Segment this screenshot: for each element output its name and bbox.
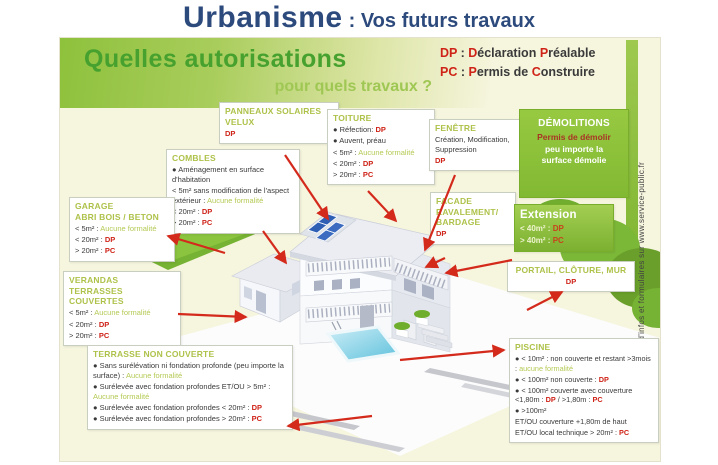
text-segment: < 20m² :	[69, 320, 99, 329]
text-segment: ● >100m²	[515, 406, 546, 415]
box-lines-garage: < 5m² : Aucune formalité< 20m² : DP> 20m…	[75, 224, 169, 256]
text-line: ● Auvent, préau	[333, 136, 429, 146]
box-lines-piscine: ● < 10m² : non couverte et restant >3moi…	[515, 354, 653, 437]
label-box-demolitions: DÉMOLITIONS Permis de démolirpeu importe…	[519, 109, 629, 198]
box-lines-combles: ● Aménagement en surface d'habitation< 5…	[172, 165, 294, 228]
text-segment: PC	[252, 414, 262, 423]
text-line: DP	[436, 229, 510, 239]
text-line: peu importe la surface démolie	[525, 144, 623, 165]
label-box-garage: GARAGE ABRI BOIS / BETON < 5m² : Aucune …	[69, 197, 175, 262]
label-box-fenetre: FENÊTRE Création, Modification, Suppress…	[429, 119, 529, 171]
text-segment: DP	[553, 224, 564, 233]
text-line: ET/OU couverture +1,80m de haut	[515, 417, 653, 426]
text-line: < 20m² : DP	[69, 320, 175, 330]
box-title-terrasse: TERRASSE NON COUVERTE	[93, 349, 287, 360]
text-line: < 20m² : DP	[333, 159, 429, 169]
text-line: ● < 100m² non couverte : DP	[515, 375, 653, 384]
box-subtitle-garage: ABRI BOIS / BETON	[75, 212, 169, 223]
text-segment: DP	[202, 207, 212, 216]
text-segment: < 5m² :	[333, 148, 358, 157]
box-title-verandas: VERANDAS	[69, 275, 175, 286]
box-title-demolitions: DÉMOLITIONS	[525, 118, 623, 131]
text-segment: Aucune formalité	[358, 148, 414, 157]
text-segment: Aucune formalité	[100, 224, 156, 233]
text-segment: ● < 100m² non couverte :	[515, 375, 599, 384]
box-title-piscine: PISCINE	[515, 342, 653, 353]
text-segment: Aucune formalité	[94, 308, 150, 317]
label-box-facade: FACADE RAVALEMENT/ BARDAGE DP	[430, 192, 516, 245]
box-lines-verandas: < 5m² : Aucune formalité< 20m² : DP> 20m…	[69, 308, 175, 340]
text-segment: PC	[363, 170, 373, 179]
text-line: > 20m² : PC	[172, 218, 294, 228]
text-line: > 20m² : PC	[333, 170, 429, 180]
box-lines-facade: DP	[436, 229, 510, 239]
text-segment: PC	[99, 331, 109, 340]
text-segment: DP	[435, 156, 445, 165]
text-segment: / >1,80m :	[556, 395, 593, 404]
text-segment: DP	[225, 129, 235, 138]
text-segment: > 20m² :	[69, 331, 99, 340]
text-segment: DP	[363, 159, 373, 168]
text-segment: < 5m² :	[69, 308, 94, 317]
box-title-extension: Extension	[520, 208, 608, 222]
text-segment: ET/OU local technique > 20m² :	[515, 428, 619, 437]
text-segment: ET/OU couverture +1,80m de haut	[515, 417, 627, 426]
label-box-portail: PORTAIL, CLÔTURE, MUR DP	[507, 261, 635, 292]
label-box-terrasse: TERRASSE NON COUVERTE ● Sans surélévatio…	[87, 345, 293, 430]
text-segment: aucune formalité	[519, 364, 573, 373]
text-line: ET/OU local technique > 20m² : PC	[515, 428, 653, 437]
text-line: < 5m² : Aucune formalité	[75, 224, 169, 234]
text-line: ● Surélevée avec fondation profondes ET/…	[93, 382, 287, 402]
text-line: < 40m² : DP	[520, 224, 608, 234]
text-segment: Création, Modification, Suppression	[435, 135, 510, 154]
text-line: > 20m² : PC	[75, 246, 169, 256]
box-title-facade: FACADE	[436, 196, 510, 207]
text-line: DP	[435, 156, 523, 166]
text-segment: > 20m² :	[172, 218, 202, 227]
box-subtitle-verandas: TERRASSES COUVERTES	[69, 286, 175, 307]
box-lines-extension: < 40m² : DP> 40m² : PC	[520, 224, 608, 246]
text-segment: PC	[202, 218, 212, 227]
text-line: DP	[513, 277, 629, 287]
text-line: ● Sans surélévation ni fondation profond…	[93, 361, 287, 381]
screenshot-root: Urbanisme: Vos futurs travaux Quelles au…	[0, 0, 718, 465]
text-segment: DP	[599, 375, 609, 384]
text-line: ● Réfection: DP	[333, 125, 429, 135]
text-segment: < 20m² :	[75, 235, 105, 244]
text-line: < 20m² : DP	[172, 207, 294, 217]
text-line: ● Aménagement en surface d'habitation	[172, 165, 294, 185]
box-lines-toiture: ● Réfection: DP● Auvent, préau< 5m² : Au…	[333, 125, 429, 180]
text-segment: PC	[592, 395, 602, 404]
text-segment: < 40m² :	[520, 224, 553, 233]
text-line: ● < 10m² : non couverte et restant >3moi…	[515, 354, 653, 373]
text-line: Création, Modification, Suppression	[435, 135, 523, 155]
text-line: ● Surélevée avec fondation profondes > 2…	[93, 414, 287, 424]
text-segment: ● Auvent, préau	[333, 136, 386, 145]
box-subtitle-facade: RAVALEMENT/ BARDAGE	[436, 207, 510, 228]
box-lines-demolitions: Permis de démolirpeu importe la surface …	[525, 132, 623, 165]
label-box-combles: COMBLES ● Aménagement en surface d'habit…	[166, 149, 300, 234]
text-line: DP	[225, 129, 333, 139]
page-title-main: Urbanisme	[183, 1, 343, 34]
text-line: < 20m² : DP	[75, 235, 169, 245]
text-segment: PC	[619, 428, 629, 437]
infographic-poster: Quelles autorisations pour quels travaux…	[59, 37, 661, 462]
text-segment: DP	[546, 395, 556, 404]
text-line: < 5m² sans modification de l'aspect exté…	[172, 186, 294, 206]
box-title-combles: COMBLES	[172, 153, 294, 164]
text-segment: PC	[105, 246, 115, 255]
text-segment: ● Réfection:	[333, 125, 375, 134]
text-segment: ● Surélevée avec fondation profondes > 2…	[93, 414, 252, 423]
text-line: Permis de démolir	[525, 132, 623, 143]
label-box-panneaux-solaires: PANNEAUX SOLAIRES VELUX DP	[219, 102, 339, 144]
text-segment: DP	[105, 235, 115, 244]
text-segment: DP	[375, 125, 385, 134]
label-box-toiture: TOITURE ● Réfection: DP● Auvent, préau< …	[327, 109, 435, 185]
text-segment: DP	[252, 403, 262, 412]
label-box-verandas: VERANDAS TERRASSES COUVERTES < 5m² : Auc…	[63, 271, 181, 346]
box-title-toiture: TOITURE	[333, 113, 429, 124]
box-lines-terrasse: ● Sans surélévation ni fondation profond…	[93, 361, 287, 424]
text-segment: ● Aménagement en surface d'habitation	[172, 165, 264, 184]
text-segment: DP	[99, 320, 109, 329]
box-title-garage: GARAGE	[75, 201, 169, 212]
text-line: ● < 100m² couverte avec couverture <1,80…	[515, 386, 653, 405]
text-segment: > 40m² :	[520, 236, 553, 245]
box-lines-panneaux: DP	[225, 129, 333, 139]
more-info-vertical-text: + d'infos et formulaires sur www.service…	[637, 148, 653, 348]
text-segment: peu importe la surface démolie	[542, 144, 607, 165]
text-segment: Aucune formalité	[207, 196, 263, 205]
text-segment: ● Sans surélévation ni fondation profond…	[93, 361, 284, 380]
text-segment: > 20m² :	[75, 246, 105, 255]
text-line: > 20m² : PC	[69, 331, 175, 341]
page-title: Urbanisme: Vos futurs travaux	[0, 1, 718, 35]
text-segment: ● Surélevée avec fondation profondes ET/…	[93, 382, 270, 391]
text-segment: < 5m² :	[75, 224, 100, 233]
text-line: ● Surélevée avec fondation profondes < 2…	[93, 403, 287, 413]
text-segment: < 20m² :	[333, 159, 363, 168]
text-segment: Permis de démolir	[537, 132, 611, 142]
box-title-fenetre: FENÊTRE	[435, 123, 523, 134]
page-title-sub: : Vos futurs travaux	[349, 10, 535, 32]
text-segment: Aucune formalité	[93, 392, 149, 401]
text-line: < 5m² : Aucune formalité	[69, 308, 175, 318]
box-lines-fenetre: Création, Modification, SuppressionDP	[435, 135, 523, 166]
box-title-panneaux: PANNEAUX SOLAIRES VELUX	[225, 106, 333, 127]
text-segment: Aucune formalité	[126, 371, 182, 380]
text-segment: < 20m² :	[172, 207, 202, 216]
text-segment: PC	[553, 236, 564, 245]
text-line: < 5m² : Aucune formalité	[333, 148, 429, 158]
text-line: ● >100m²	[515, 406, 653, 415]
text-segment: DP	[566, 277, 576, 286]
text-line: > 40m² : PC	[520, 236, 608, 246]
text-segment: ● Surélevée avec fondation profondes < 2…	[93, 403, 252, 412]
text-segment: > 20m² :	[333, 170, 363, 179]
box-lines-portail: DP	[513, 277, 629, 287]
label-box-piscine: PISCINE ● < 10m² : non couverte et resta…	[509, 338, 659, 443]
text-segment: DP	[436, 229, 446, 238]
label-box-extension: Extension < 40m² : DP> 40m² : PC	[514, 204, 614, 252]
box-title-portail: PORTAIL, CLÔTURE, MUR	[513, 265, 629, 276]
